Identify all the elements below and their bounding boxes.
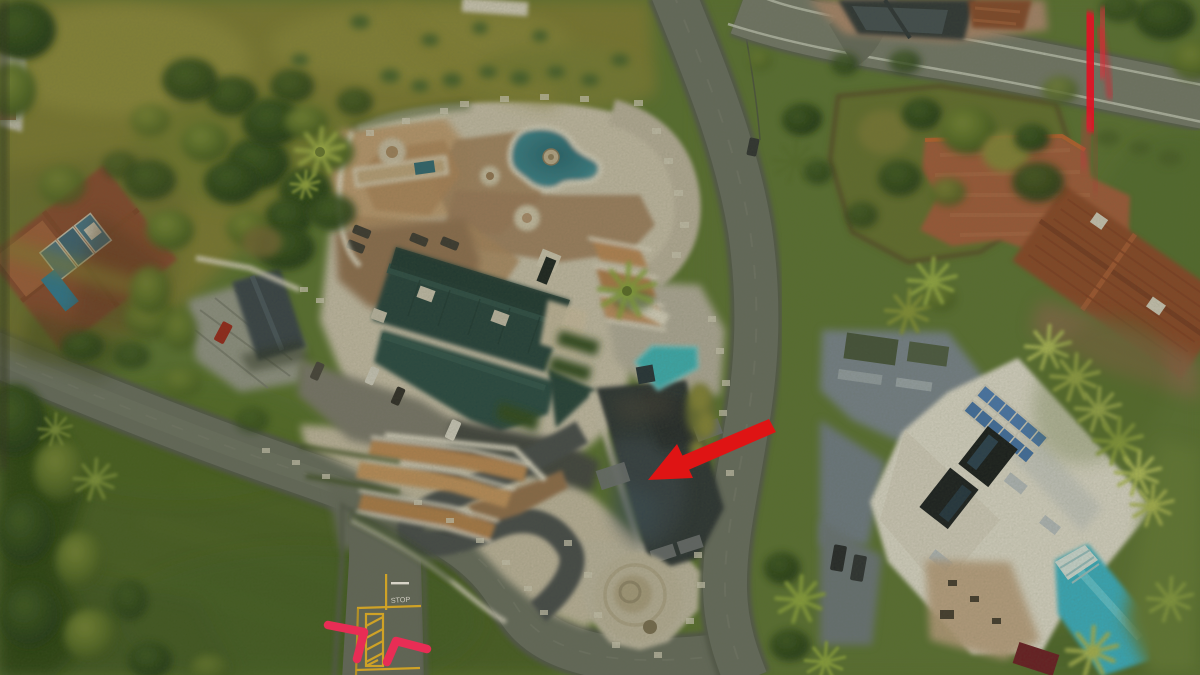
svg-text:STOP: STOP [391,595,411,605]
